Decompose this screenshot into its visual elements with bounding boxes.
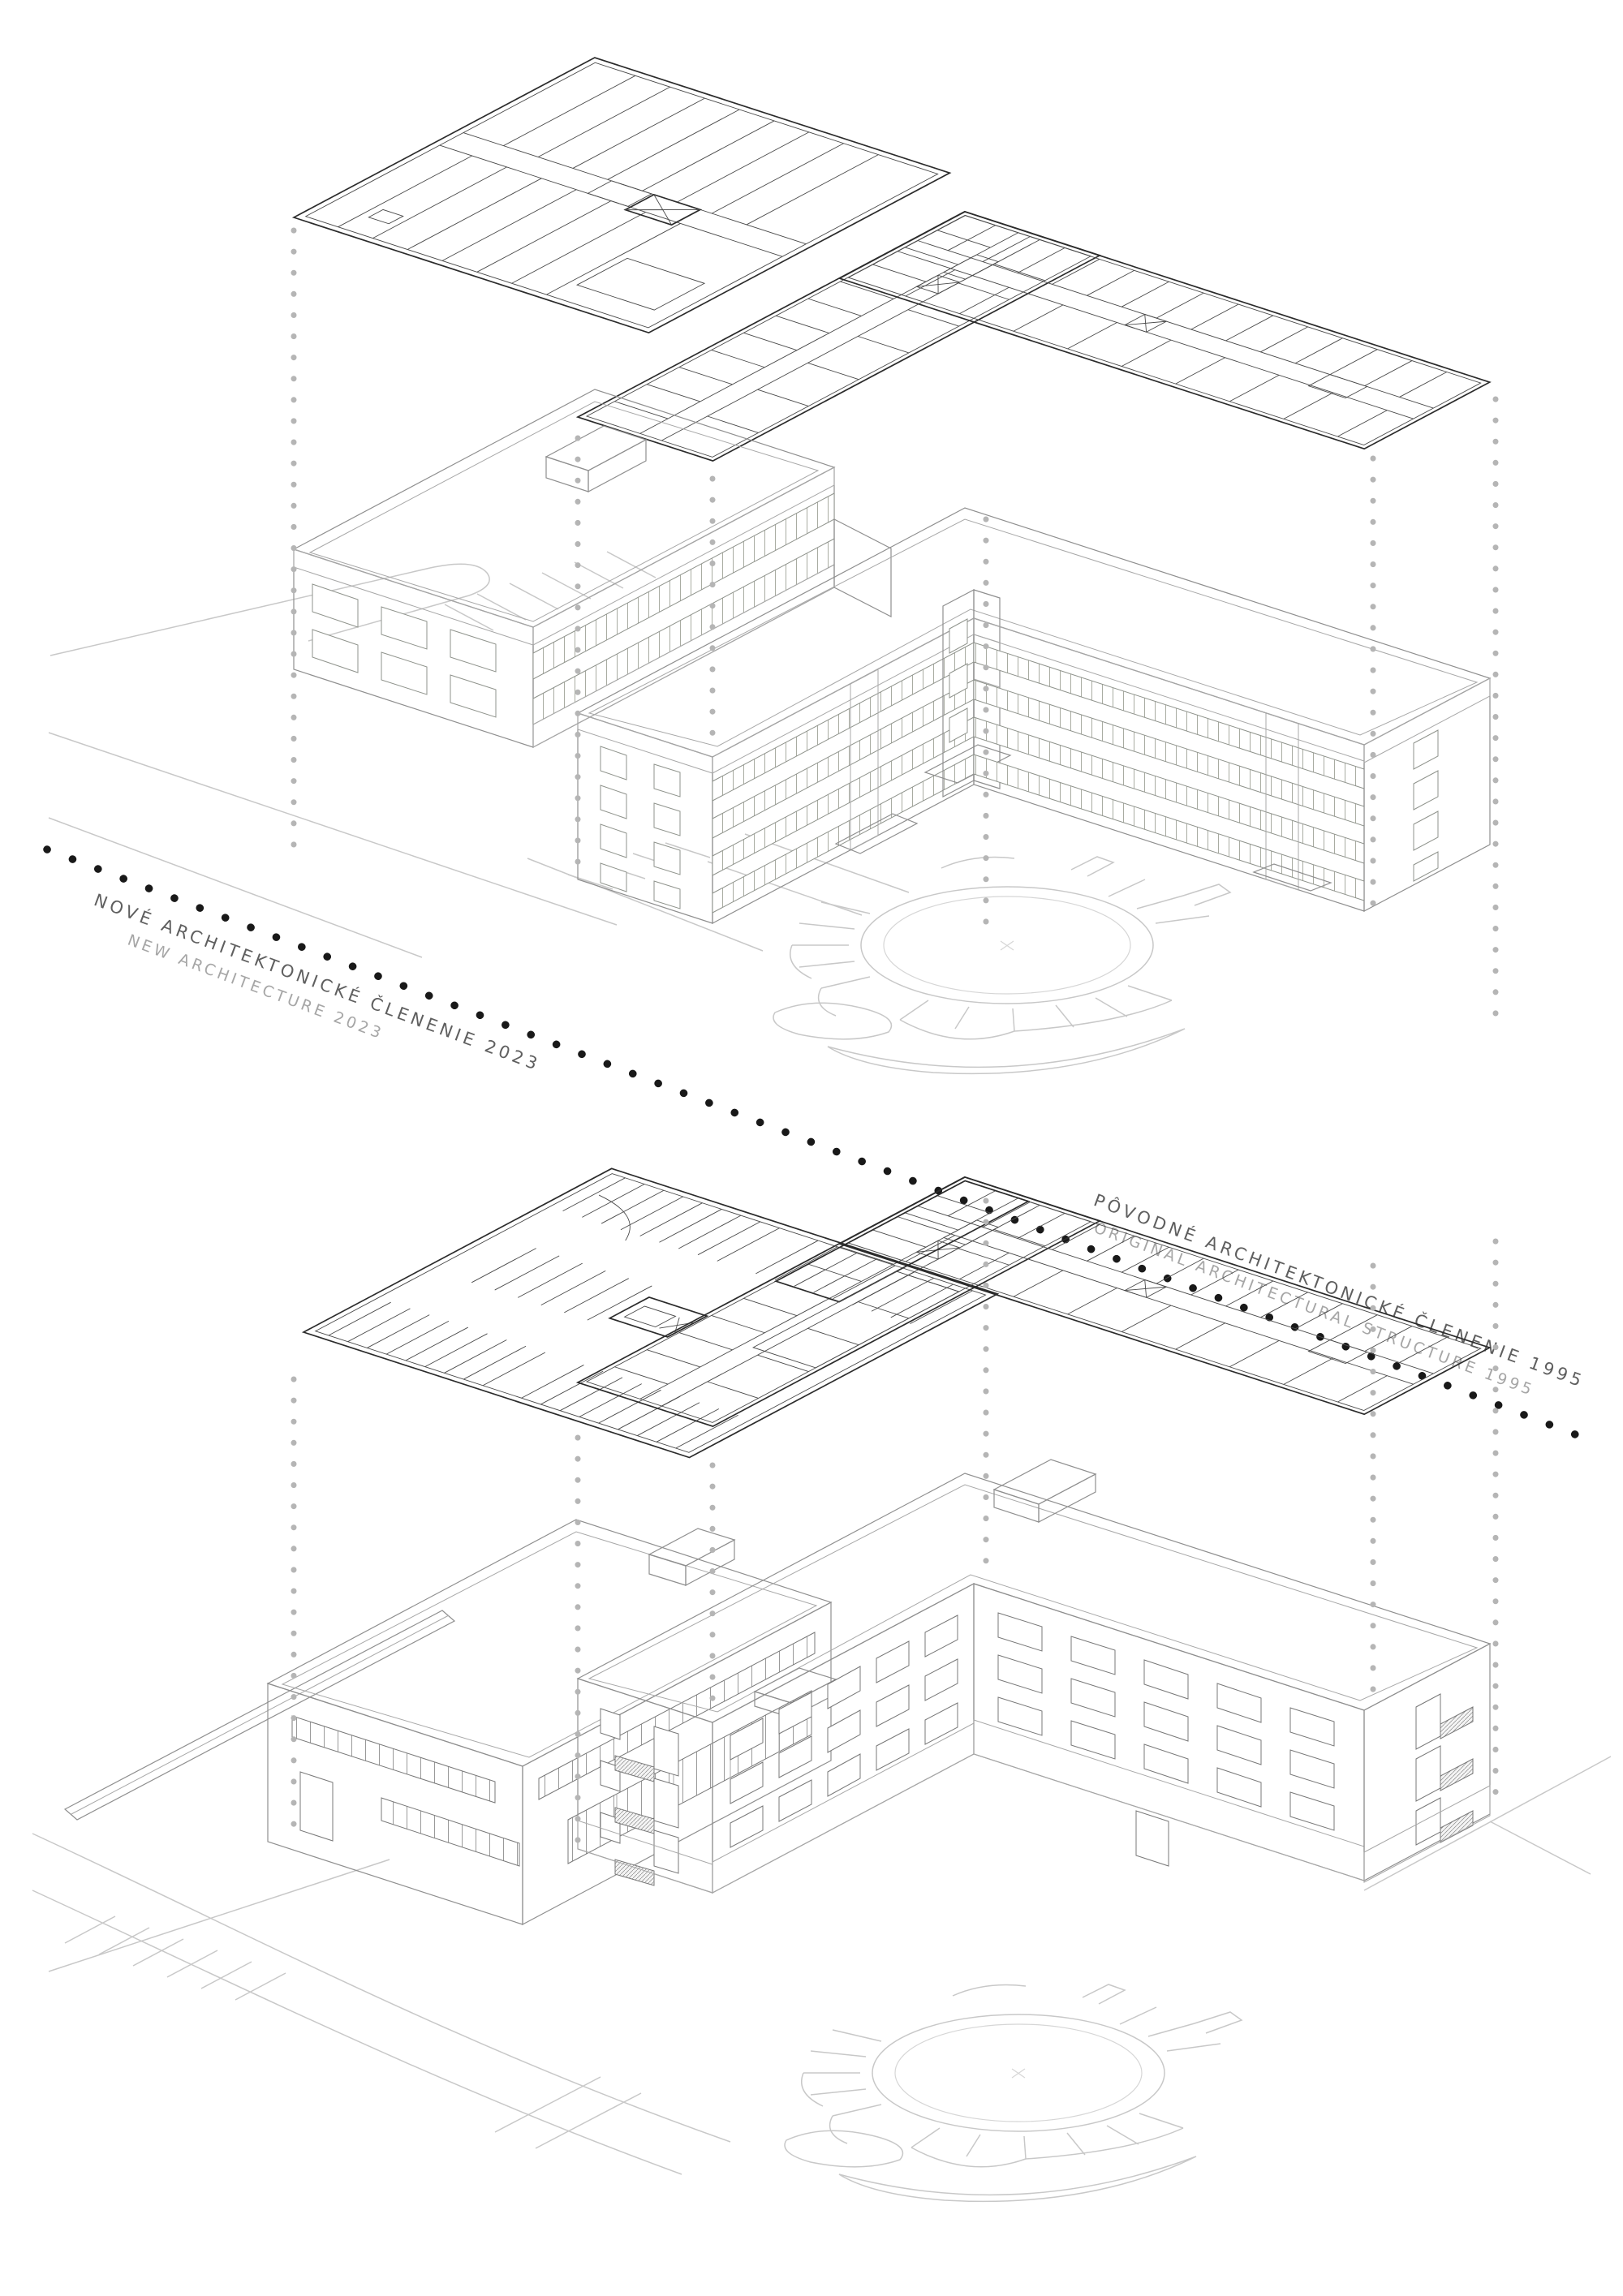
- slab-gable-windows: [312, 584, 496, 717]
- axon-hall-building-1995: [65, 1520, 831, 1924]
- tip-gable-windows: [601, 746, 680, 909]
- floor-plan-new-lshape: [578, 212, 1490, 461]
- floor-plan-new-slab: [294, 58, 949, 333]
- label-original-en: ORIGINAL ARCHITECTURAL STRUCTURE 1995: [1091, 1219, 1537, 1400]
- label-original-structure: PÔVODNÉ ARCHITEKTONICKÉ ČLENENIE 1995 OR…: [1083, 1189, 1588, 1415]
- end-gable-windows: [1414, 730, 1438, 881]
- label-new-sk: NOVÉ ARCHITEKTONICKÉ ČLENENIE 2023: [92, 889, 544, 1074]
- site-plan-lines-top: [49, 552, 1230, 1073]
- label-new-architecture: NOVÉ ARCHITEKTONICKÉ ČLENENIE 2023 NEW A…: [83, 889, 544, 1099]
- section-new-architecture: [49, 58, 1496, 1073]
- axonometric-diagram: NOVÉ ARCHITEKTONICKÉ ČLENENIE 2023 NEW A…: [0, 0, 1623, 2296]
- site-plan-lines-bottom: [32, 1834, 1242, 2201]
- balconies: [615, 1756, 654, 1885]
- axon-slab-building-2023: [294, 389, 891, 747]
- section-divider-dotted-line: [47, 849, 1575, 1434]
